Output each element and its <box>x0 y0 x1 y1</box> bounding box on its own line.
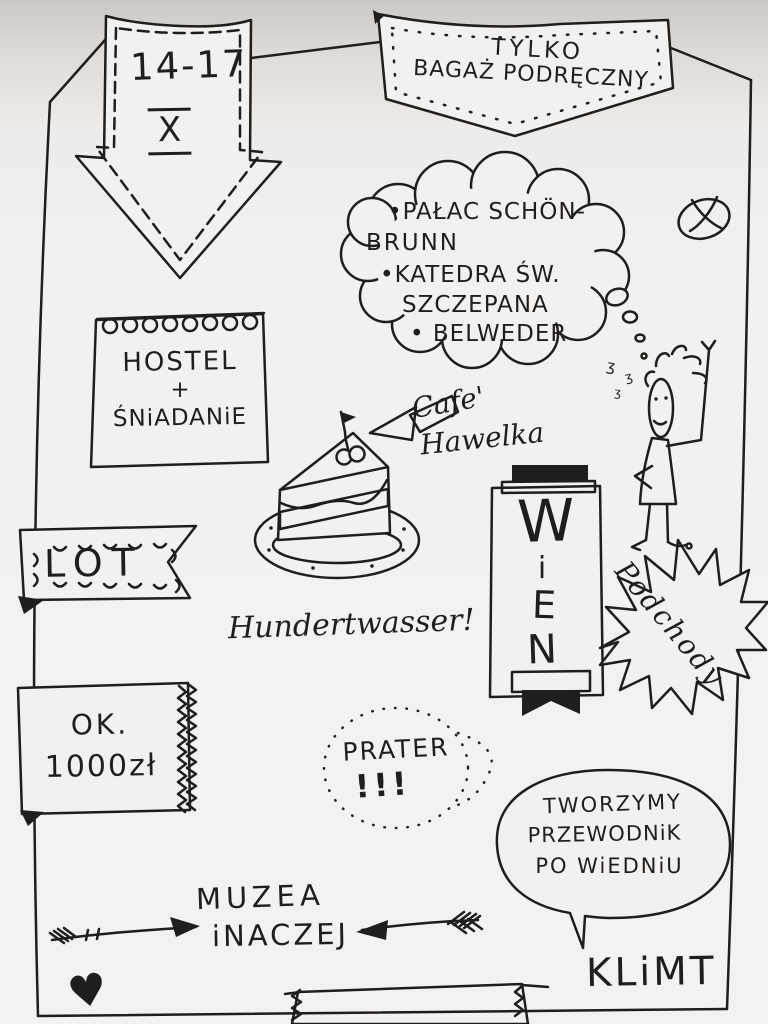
muzea-line1: MUZEA <box>195 880 325 916</box>
speech-bubble-line3: PO WiEDNiU <box>512 855 707 878</box>
wien-letter-i: i <box>488 552 596 585</box>
prater-bubble-line2: !!! <box>354 766 412 805</box>
notepad-line1: HOSTEL <box>105 347 255 378</box>
sights-cloud-line3: •KATEDRA ŚW. <box>380 263 561 288</box>
wien-letter-w: W <box>491 488 601 556</box>
wien-letter-n: N <box>487 626 596 674</box>
hatched-ribbon-shape <box>285 984 548 1024</box>
sights-cloud-line2: BRUNN <box>366 231 459 256</box>
squiggle-doodle: ʒ <box>623 370 634 386</box>
heart-icon: ♥ <box>64 965 111 1020</box>
lot-flag-label: LOT <box>44 542 145 586</box>
arrow-doodle-left <box>50 917 200 943</box>
person-doodle: ʒ ʒ ʒ <box>605 341 715 550</box>
wien-letter-e: E <box>489 583 598 629</box>
sketchnote-page: ʒ ʒ ʒ 14-17 X TYLKO <box>0 0 768 1024</box>
squiggle-doodle: ʒ <box>605 356 617 375</box>
sights-cloud-line1: •PAŁAC SCHÖN- <box>388 200 586 225</box>
month-roman-glyph: X <box>148 108 192 156</box>
sights-cloud-line5: • BELWEDER <box>410 322 567 347</box>
squiggle-doodle: ʒ <box>614 385 622 400</box>
muzea-line2: iNACZEJ <box>212 919 350 953</box>
notepad-line3: ŚNiADANiE <box>96 405 264 433</box>
klimt-label: KLiMT <box>586 951 717 996</box>
price-ticket-line1: OK. <box>30 709 171 742</box>
price-ticket-line2: 1000zł <box>22 749 181 785</box>
month-roman-label: X <box>148 108 192 156</box>
date-range-label: 14-17 <box>129 44 248 89</box>
prater-bubble-line1: PRATER <box>337 733 454 767</box>
speech-bubble-line2: PRZEWODNiK <box>502 821 707 848</box>
notepad-line2: + <box>105 378 255 403</box>
arrow-doodle-right <box>356 912 482 940</box>
pretzel-icon <box>673 193 734 245</box>
sights-cloud-line4: SZCZEPANA <box>402 293 549 318</box>
